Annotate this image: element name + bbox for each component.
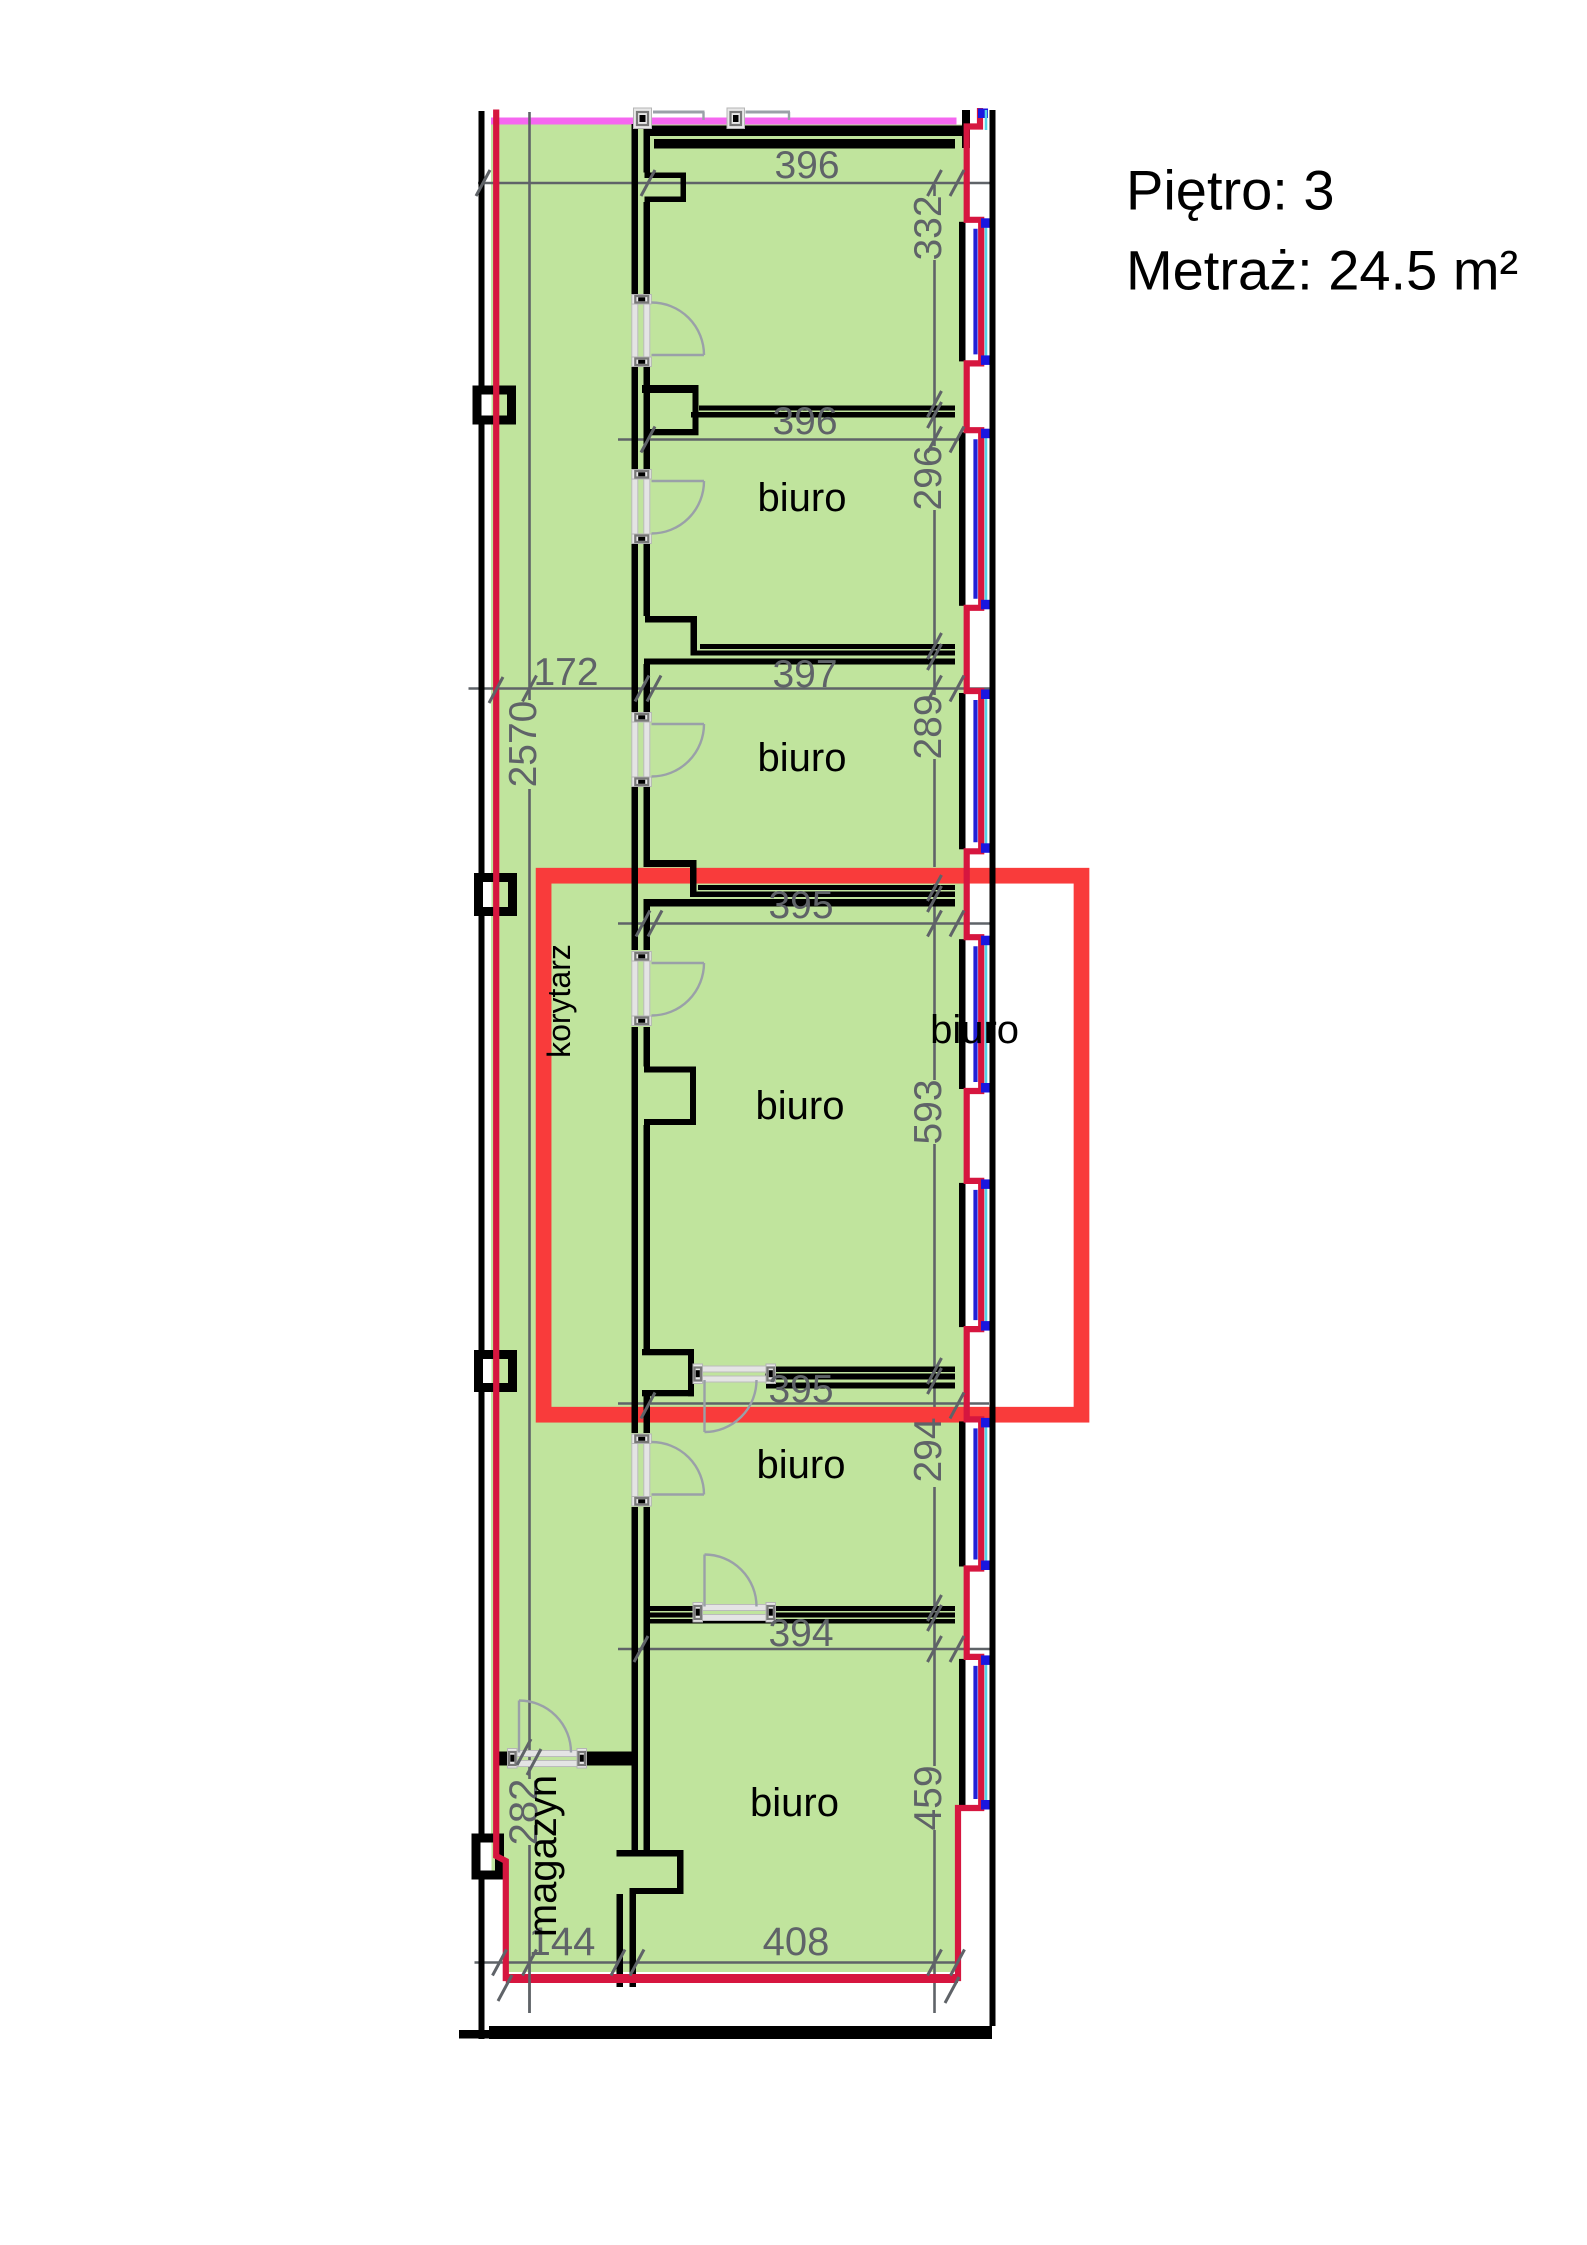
svg-text:394: 394: [768, 1612, 833, 1655]
svg-text:biuro: biuro: [930, 1008, 1019, 1052]
svg-text:Piętro: 3: Piętro: 3: [1126, 159, 1335, 222]
svg-text:459: 459: [907, 1765, 950, 1830]
svg-text:2570: 2570: [502, 701, 545, 788]
svg-text:332: 332: [907, 195, 950, 260]
svg-text:289: 289: [907, 694, 950, 759]
svg-text:korytarz: korytarz: [541, 944, 577, 1058]
svg-text:396: 396: [772, 400, 837, 443]
svg-text:395: 395: [768, 1368, 833, 1411]
svg-text:biuro: biuro: [758, 476, 847, 520]
svg-text:395: 395: [768, 884, 833, 927]
svg-text:172: 172: [533, 651, 598, 694]
svg-text:294: 294: [907, 1417, 950, 1482]
svg-text:magazyn: magazyn: [521, 1775, 565, 1937]
svg-text:397: 397: [772, 653, 837, 696]
svg-text:296: 296: [907, 445, 950, 510]
svg-text:biuro: biuro: [756, 1084, 845, 1128]
svg-text:biuro: biuro: [757, 1443, 846, 1487]
svg-text:408: 408: [763, 1920, 830, 1964]
svg-text:biuro: biuro: [758, 736, 847, 780]
svg-text:biuro: biuro: [750, 1781, 839, 1825]
svg-text:Metraż: 24.5 m²: Metraż: 24.5 m²: [1126, 239, 1518, 302]
svg-text:396: 396: [774, 144, 839, 187]
svg-text:593: 593: [907, 1079, 950, 1144]
